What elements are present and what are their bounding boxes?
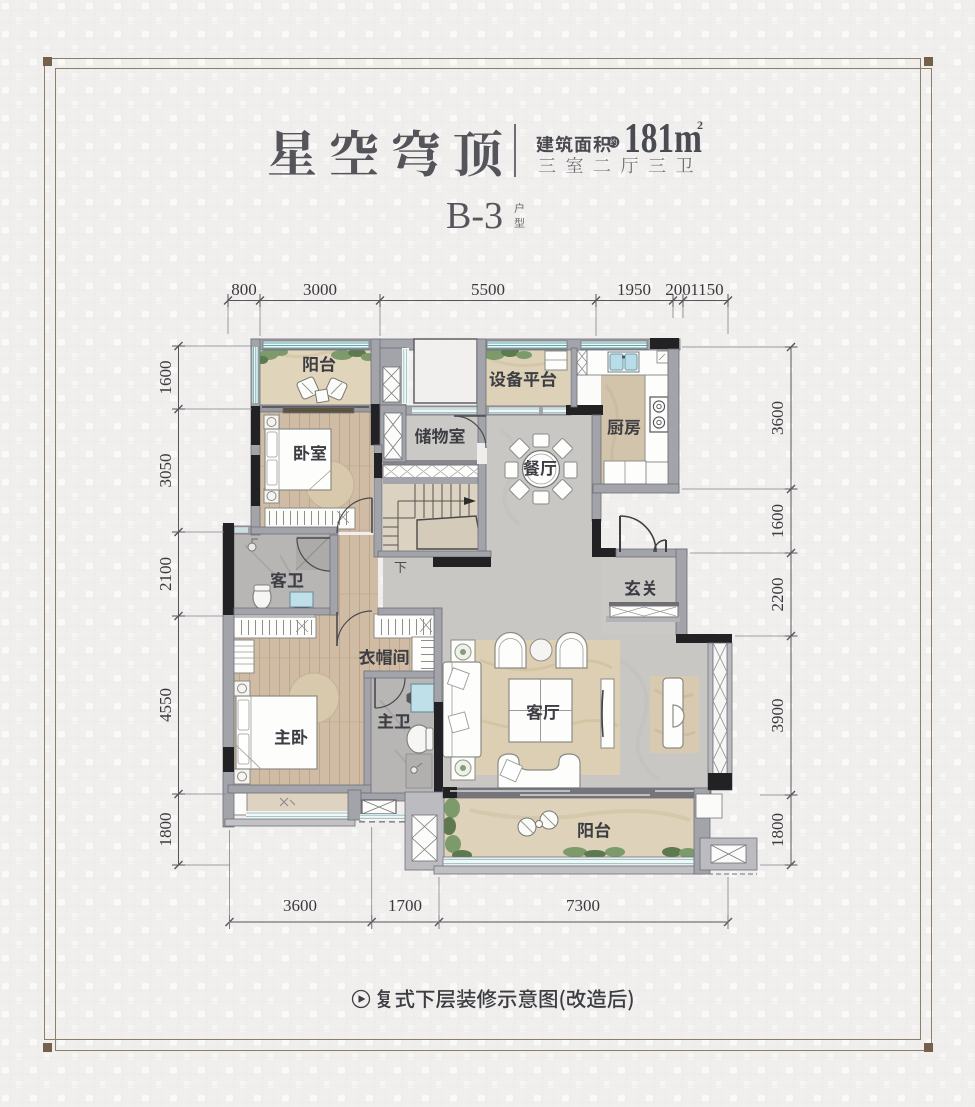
svg-text:4550: 4550 [156,688,175,722]
svg-text:181m: 181m [624,116,702,162]
svg-text:3900: 3900 [768,699,787,733]
svg-text:1150: 1150 [690,280,723,299]
svg-text:1800: 1800 [768,813,787,847]
svg-text:5500: 5500 [471,280,505,299]
svg-text:3600: 3600 [768,401,787,435]
svg-text:200: 200 [665,280,691,299]
svg-text:B-3: B-3 [446,195,503,237]
svg-text:2: 2 [697,118,703,132]
svg-text:1600: 1600 [768,504,787,538]
svg-text:7300: 7300 [566,896,600,915]
svg-text:3050: 3050 [156,454,175,488]
svg-text:1700: 1700 [388,896,422,915]
svg-text:2200: 2200 [768,578,787,612]
svg-text:3600: 3600 [283,896,317,915]
svg-text:800: 800 [231,280,257,299]
svg-text:3000: 3000 [303,280,337,299]
svg-text:1600: 1600 [156,361,175,395]
svg-text:1950: 1950 [617,280,651,299]
svg-text:1800: 1800 [156,813,175,847]
svg-text:2100: 2100 [156,557,175,591]
